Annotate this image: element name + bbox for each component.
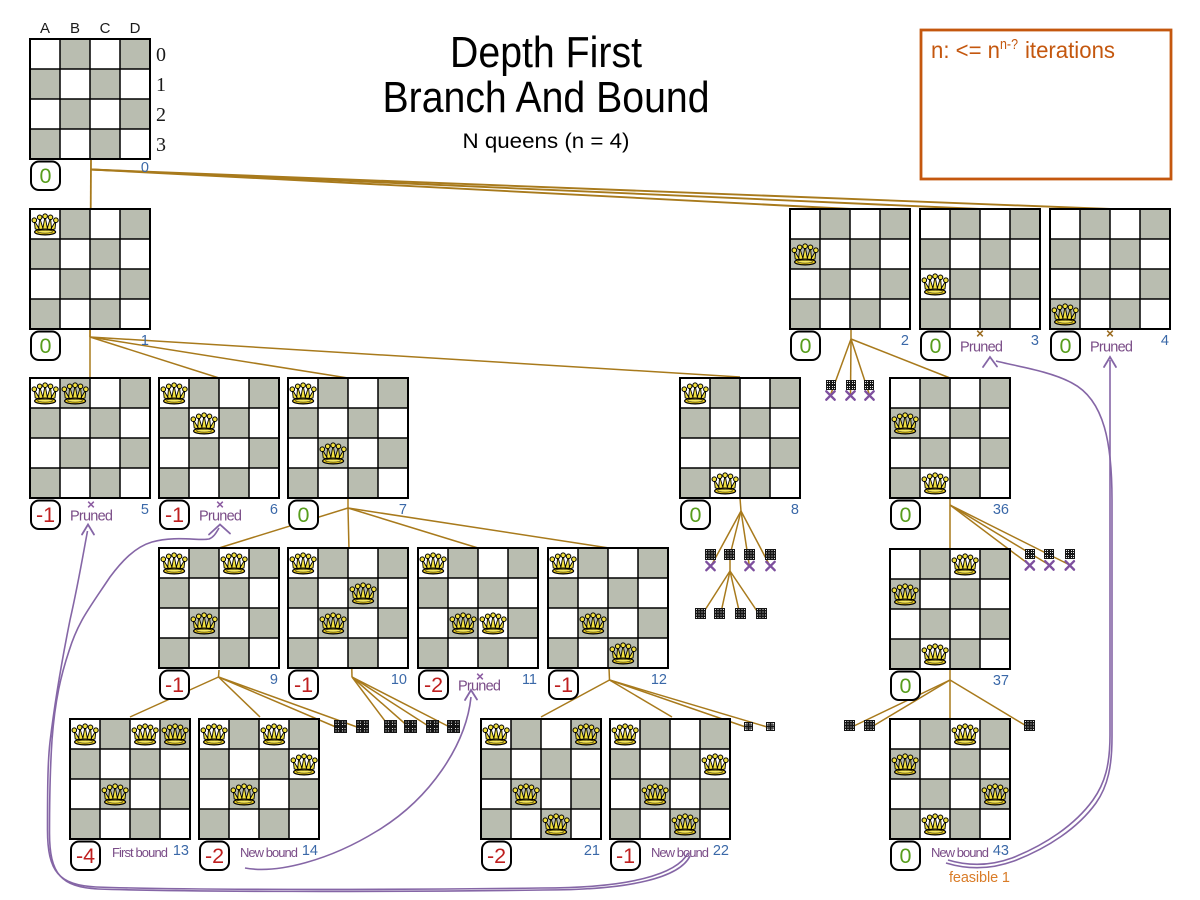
svg-text:C: C — [100, 20, 111, 37]
svg-text:Pruned: Pruned — [199, 509, 242, 525]
svg-text:B: B — [70, 20, 80, 37]
svg-text:3: 3 — [1031, 333, 1039, 349]
svg-text:2: 2 — [156, 104, 166, 126]
svg-text:13: 13 — [173, 843, 189, 859]
svg-text:36: 36 — [993, 502, 1009, 518]
svg-text:6: 6 — [270, 502, 278, 518]
svg-text:0: 0 — [900, 503, 912, 527]
svg-text:-2: -2 — [424, 673, 443, 697]
svg-text:5: 5 — [141, 502, 149, 518]
svg-text:2: 2 — [901, 333, 909, 349]
svg-text:0: 0 — [40, 164, 52, 188]
svg-text:4: 4 — [1161, 333, 1169, 349]
svg-text:0: 0 — [900, 674, 912, 698]
svg-text:New bound: New bound — [240, 845, 298, 860]
svg-text:0: 0 — [800, 334, 812, 358]
svg-text:Pruned: Pruned — [70, 509, 113, 525]
svg-text:43: 43 — [993, 843, 1009, 859]
svg-text:0: 0 — [900, 844, 912, 868]
svg-text:22: 22 — [713, 843, 729, 859]
svg-text:-1: -1 — [616, 844, 635, 868]
svg-text:7: 7 — [399, 502, 407, 518]
svg-text:11: 11 — [522, 672, 537, 688]
svg-text:-2: -2 — [205, 844, 224, 868]
svg-text:1: 1 — [156, 74, 166, 96]
svg-text:0: 0 — [690, 503, 702, 527]
svg-text:A: A — [40, 20, 50, 37]
svg-text:-1: -1 — [165, 503, 184, 527]
svg-text:12: 12 — [651, 672, 667, 688]
svg-text:Branch And Bound: Branch And Bound — [383, 73, 710, 122]
svg-text:New bound: New bound — [931, 845, 989, 860]
svg-text:-1: -1 — [36, 503, 55, 527]
svg-text:-4: -4 — [76, 844, 95, 868]
svg-text:Pruned: Pruned — [960, 340, 1003, 356]
svg-text:-1: -1 — [294, 673, 313, 697]
svg-text:D: D — [130, 20, 141, 37]
svg-text:0: 0 — [930, 334, 942, 358]
svg-text:Pruned: Pruned — [458, 679, 501, 695]
svg-text:37: 37 — [993, 673, 1009, 689]
svg-text:Pruned: Pruned — [1090, 340, 1133, 356]
svg-text:-2: -2 — [487, 844, 506, 868]
svg-text:N queens (n = 4): N queens (n = 4) — [463, 130, 630, 153]
svg-text:10: 10 — [391, 672, 407, 688]
svg-text:0: 0 — [156, 44, 166, 66]
svg-text:-1: -1 — [165, 673, 184, 697]
svg-text:-1: -1 — [554, 673, 573, 697]
svg-text:21: 21 — [584, 843, 600, 859]
svg-text:3: 3 — [156, 134, 166, 156]
svg-text:0: 0 — [141, 160, 149, 176]
svg-text:First bound: First bound — [112, 845, 168, 860]
svg-text:8: 8 — [791, 502, 799, 518]
svg-text:0: 0 — [40, 334, 52, 358]
svg-text:0: 0 — [1060, 334, 1072, 358]
svg-text:Depth First: Depth First — [450, 28, 642, 77]
svg-text:14: 14 — [302, 843, 318, 859]
svg-text:1: 1 — [141, 333, 149, 349]
svg-text:feasible 1: feasible 1 — [949, 870, 1010, 886]
svg-text:9: 9 — [270, 672, 278, 688]
svg-text:New bound: New bound — [651, 845, 709, 860]
svg-text:0: 0 — [298, 503, 310, 527]
